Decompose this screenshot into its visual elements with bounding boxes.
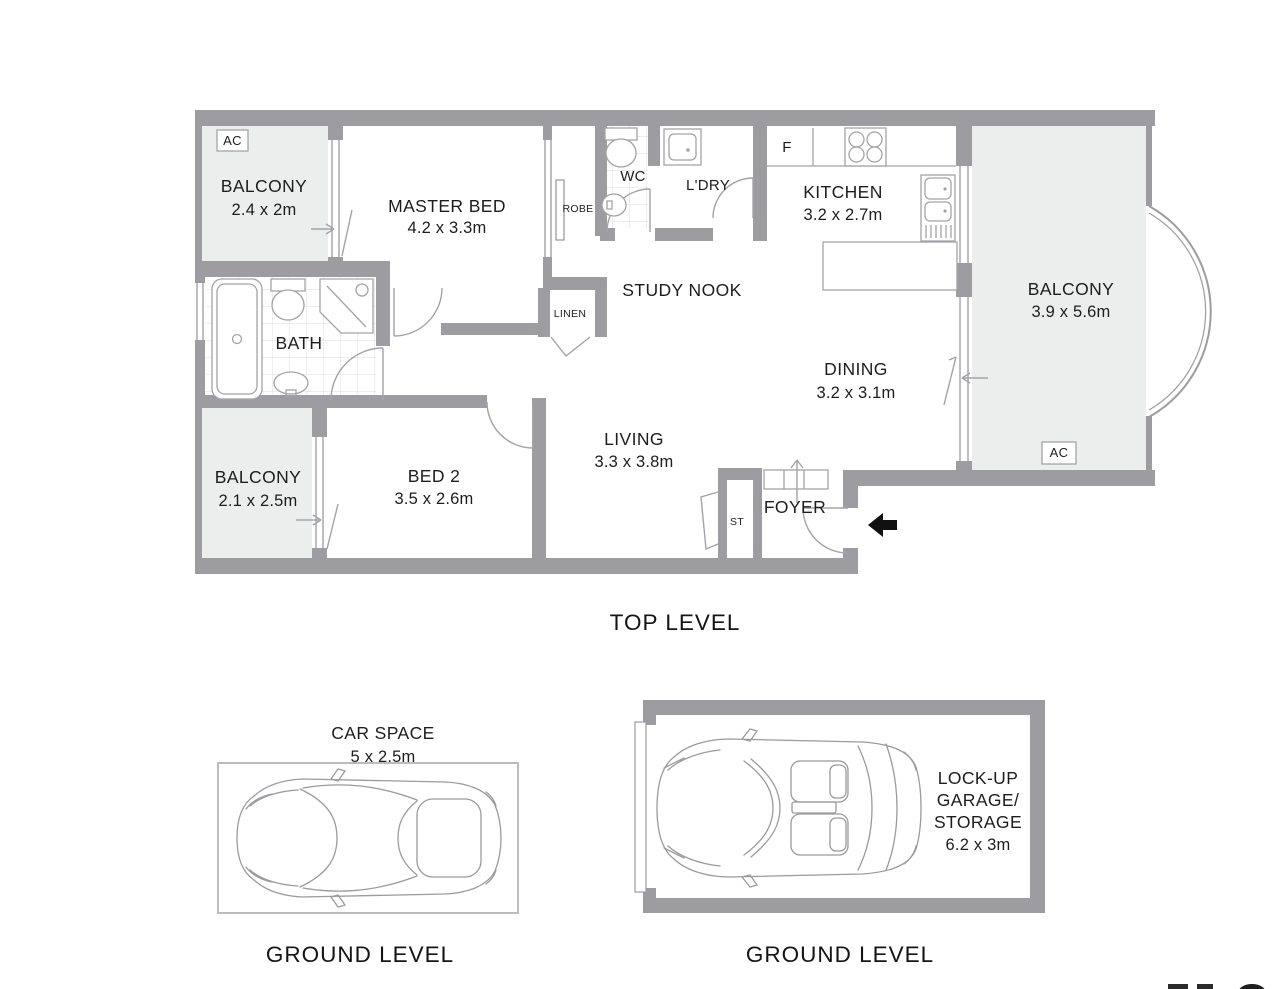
living-label: LIVING — [604, 429, 664, 449]
logo-fragment — [1168, 984, 1266, 989]
balcony-top-left-dims: 2.4 x 2m — [232, 201, 297, 219]
ground-level-caption-right: GROUND LEVEL — [746, 942, 934, 967]
balcony-lower-left-label: BALCONY — [215, 467, 301, 487]
bath-label: BATH — [276, 333, 323, 353]
bed2-dims: 3.5 x 2.6m — [394, 490, 473, 508]
linen-label: LINEN — [554, 308, 586, 320]
garage-plan: LOCK-UP GARAGE/ STORAGE 6.2 x 3m GROUND … — [635, 700, 1045, 967]
kitchen-dims: 3.2 x 2.7m — [803, 206, 882, 224]
ground-level-caption-left: GROUND LEVEL — [266, 942, 454, 967]
balcony-right-dims: 3.9 x 5.6m — [1031, 303, 1110, 321]
garage-labels: LOCK-UP GARAGE/ STORAGE 6.2 x 3m — [934, 768, 1022, 854]
master-bed-label: MASTER BED — [388, 196, 506, 216]
car-space-label: CAR SPACE — [331, 723, 434, 743]
garage-dims: 6.2 x 3m — [946, 836, 1011, 854]
top-level-plan: AC AC BALCONY 2.4 x 2m MASTER BED 4.2 x … — [195, 110, 1211, 635]
foyer-steps — [764, 470, 828, 489]
car-space-plan: CAR SPACE 5 x 2.5m GROUND LEVEL — [218, 723, 518, 967]
garage-label-line1: LOCK-UP — [938, 768, 1019, 788]
robe-label: ROBE — [563, 203, 594, 215]
garage-label-line3: STORAGE — [934, 812, 1022, 832]
storage-label: ST — [730, 516, 744, 528]
laundry-label: L'DRY — [686, 177, 730, 194]
car-space-outline — [218, 763, 518, 913]
laundry-fixtures — [664, 129, 701, 165]
bed2-label: BED 2 — [408, 466, 461, 486]
kitchen-label: KITCHEN — [803, 182, 883, 202]
floorplan-page: AC AC BALCONY 2.4 x 2m MASTER BED 4.2 x … — [0, 0, 1280, 989]
dining-label: DINING — [824, 359, 888, 379]
fridge-label: F — [782, 139, 791, 156]
balcony-top-left-label: BALCONY — [221, 176, 307, 196]
convertible-top-view — [657, 729, 921, 887]
entry-arrow — [868, 513, 897, 537]
dining-dims: 3.2 x 3.1m — [816, 384, 895, 402]
ac-label-balcony: AC — [1050, 445, 1069, 460]
master-bed-dims: 4.2 x 3.3m — [407, 219, 486, 237]
garage-label-line2: GARAGE/ — [937, 790, 1020, 810]
floorplan-drawing: AC AC BALCONY 2.4 x 2m MASTER BED 4.2 x … — [0, 0, 1280, 989]
balcony-lower-left-dims: 2.1 x 2.5m — [218, 492, 297, 510]
bay-window — [1149, 206, 1211, 417]
balcony-right-label: BALCONY — [1028, 279, 1114, 299]
garage-door — [635, 722, 646, 892]
living-dims: 3.3 x 3.8m — [594, 453, 673, 471]
study-nook-label: STUDY NOOK — [622, 280, 741, 300]
top-level-caption: TOP LEVEL — [610, 610, 741, 635]
foyer-label: FOYER — [764, 497, 826, 517]
ac-label-top-left: AC — [223, 133, 242, 148]
wc-label: WC — [620, 168, 646, 185]
